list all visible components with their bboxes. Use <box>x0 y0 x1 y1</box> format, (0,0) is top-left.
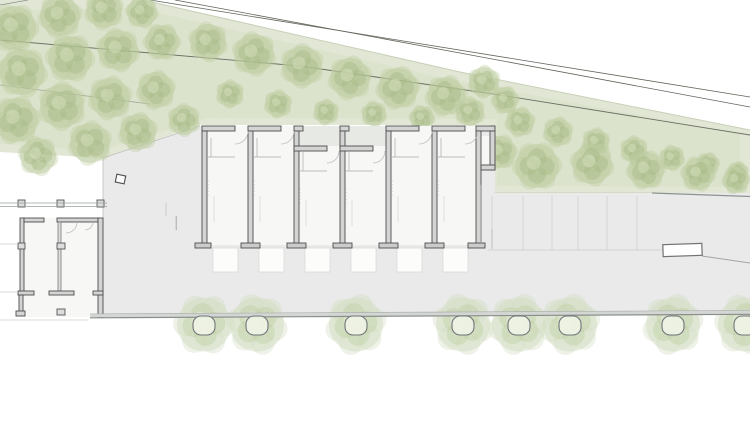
site-plan-stage <box>0 0 750 425</box>
site-plan-canvas <box>0 0 750 425</box>
